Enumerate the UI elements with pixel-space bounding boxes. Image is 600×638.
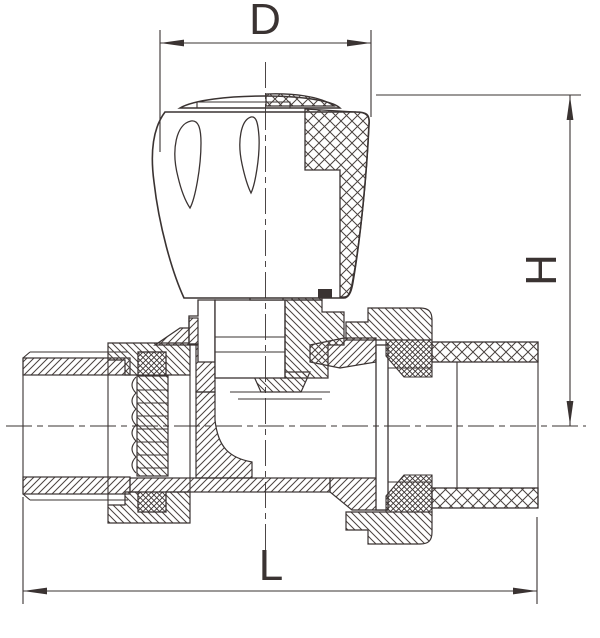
thread-profile [132, 377, 136, 473]
arrow-right-icon [513, 588, 537, 595]
right-nut-top-seal [386, 340, 432, 377]
knob [152, 94, 369, 298]
arrow-down-icon [567, 401, 574, 425]
dim-h-label: H [517, 254, 566, 286]
dim-d-label: D [249, 0, 281, 44]
valve-technical-drawing: D H L [0, 0, 600, 638]
body-bottom-wall [130, 478, 330, 492]
left-pipe-bottom-wall [23, 477, 130, 494]
knob-cap-crosshatch [266, 94, 334, 106]
dimension-l: L [23, 497, 537, 604]
valve-assembly [23, 94, 538, 544]
right-nut-bottom-seal [386, 475, 432, 512]
right-pipe-bottom-wall [432, 488, 538, 508]
left-nut-bottom-seal [138, 492, 166, 512]
left-nut-top-seal [138, 352, 166, 375]
right-pipe [432, 342, 538, 508]
bonnet-left-hatch [189, 318, 198, 344]
knob-base-seal [318, 289, 332, 298]
union-tailpiece [376, 345, 388, 510]
right-pipe-top-wall [432, 342, 538, 362]
right-nut-bottom-flange [346, 512, 432, 544]
valve-seat-lines [230, 392, 330, 399]
flow-passage-lines [388, 368, 432, 482]
arrow-right-icon [347, 40, 371, 47]
arrow-left-icon [160, 40, 184, 47]
drawing-canvas: D H L [0, 0, 600, 638]
body-chamber-wall [196, 392, 252, 478]
right-nut-top-flange [346, 308, 432, 340]
bonnet-spindle-guide [215, 300, 285, 378]
arrow-left-icon [23, 588, 47, 595]
right-pipe-end-face [457, 342, 538, 508]
arrow-up-icon [567, 96, 574, 120]
dim-l-label: L [259, 541, 283, 590]
